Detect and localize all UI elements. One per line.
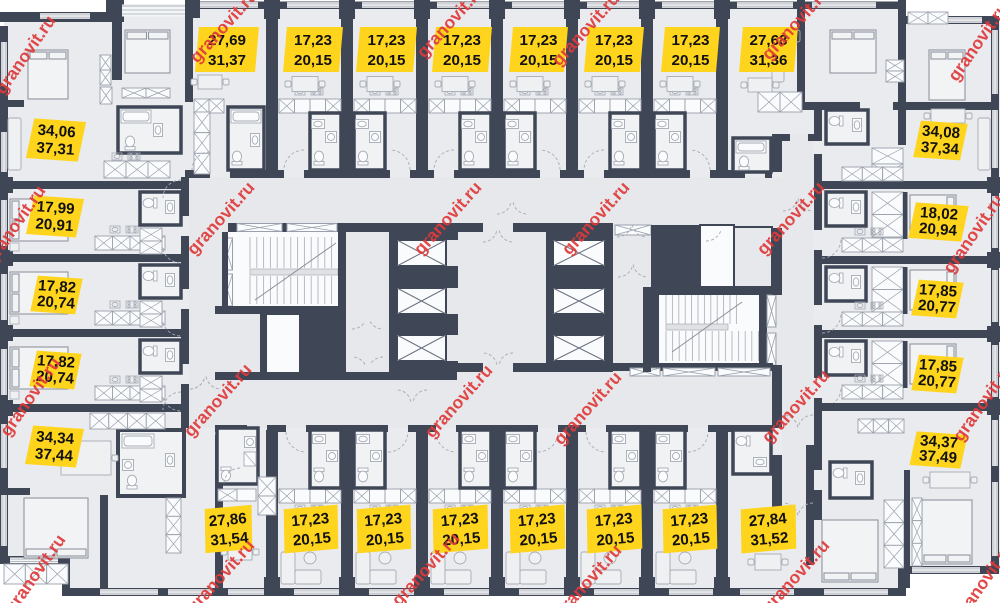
svg-text:17,23: 17,23 bbox=[595, 32, 633, 49]
svg-text:20,15: 20,15 bbox=[365, 529, 405, 549]
svg-text:20,15: 20,15 bbox=[443, 52, 482, 69]
svg-text:34,06: 34,06 bbox=[37, 122, 76, 142]
svg-text:20,77: 20,77 bbox=[917, 372, 956, 392]
svg-text:17,23: 17,23 bbox=[364, 510, 403, 530]
svg-text:20,15: 20,15 bbox=[595, 52, 634, 69]
svg-text:27,84: 27,84 bbox=[748, 510, 788, 530]
svg-text:17,23: 17,23 bbox=[671, 32, 709, 49]
svg-text:20,15: 20,15 bbox=[294, 52, 333, 69]
svg-text:37,44: 37,44 bbox=[34, 445, 74, 465]
svg-text:37,31: 37,31 bbox=[36, 139, 76, 159]
svg-text:20,15: 20,15 bbox=[367, 52, 406, 69]
svg-text:17,23: 17,23 bbox=[291, 510, 330, 530]
svg-text:20,15: 20,15 bbox=[292, 529, 332, 549]
svg-text:17,23: 17,23 bbox=[519, 32, 557, 49]
svg-text:31,52: 31,52 bbox=[750, 529, 789, 549]
svg-text:20,91: 20,91 bbox=[35, 215, 75, 235]
svg-text:17,23: 17,23 bbox=[517, 510, 556, 530]
svg-text:20,15: 20,15 bbox=[671, 529, 711, 549]
svg-text:20,74: 20,74 bbox=[36, 293, 76, 313]
svg-text:20,94: 20,94 bbox=[918, 220, 958, 240]
svg-text:20,77: 20,77 bbox=[917, 297, 956, 317]
svg-text:17,23: 17,23 bbox=[440, 510, 479, 530]
svg-text:37,34: 37,34 bbox=[920, 139, 960, 159]
svg-text:37,49: 37,49 bbox=[918, 447, 957, 467]
svg-text:20,15: 20,15 bbox=[519, 529, 559, 549]
svg-text:17,23: 17,23 bbox=[670, 510, 709, 530]
svg-text:17,23: 17,23 bbox=[594, 510, 633, 530]
svg-text:20,15: 20,15 bbox=[671, 52, 710, 69]
svg-text:17,23: 17,23 bbox=[367, 32, 405, 49]
svg-text:27,86: 27,86 bbox=[208, 510, 247, 530]
svg-text:17,23: 17,23 bbox=[294, 32, 332, 49]
svg-text:31,37: 31,37 bbox=[208, 52, 246, 69]
